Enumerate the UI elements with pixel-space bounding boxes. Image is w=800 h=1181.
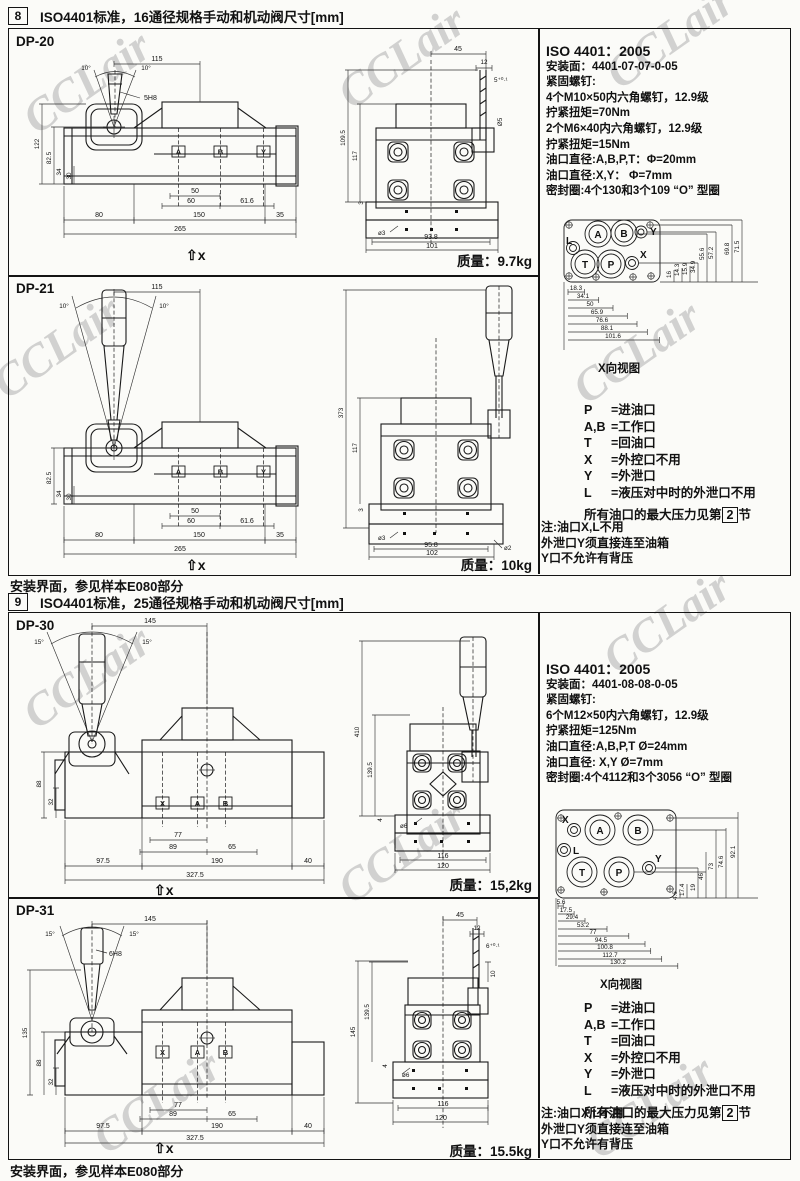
port-label: P	[616, 868, 623, 879]
dim-label: 61.6	[240, 518, 254, 525]
valve-body-outline	[366, 70, 498, 238]
dim-label: 5⁺⁰·¹	[494, 77, 508, 84]
dim-label: 19	[690, 883, 697, 891]
dim-label: 50	[586, 301, 594, 308]
mounting-face-8-drawing: L A B Y T P X 34.9 55.6 57.2 69.8 71.5 1…	[552, 200, 792, 360]
dimension-lines	[359, 641, 490, 873]
view-caption: X向视图	[598, 360, 640, 376]
dim-label: 10°	[59, 302, 69, 310]
centerlines	[163, 752, 226, 827]
dim-label: 10°	[159, 302, 169, 310]
dim-label: 88	[36, 1059, 43, 1067]
port-label: B	[223, 799, 229, 808]
note-line: 注:油口X,L不用	[541, 520, 669, 536]
dim-label: ø6	[402, 1072, 410, 1079]
dim-label: 77	[589, 929, 597, 936]
dim-label: 40	[304, 1123, 312, 1130]
dim-label: 82.5	[46, 151, 53, 164]
info-line: 安装面：4401-08-08-0-05	[546, 678, 732, 694]
valve-body-outline	[64, 422, 298, 506]
dp21-side-drawing: 373 117 3 ø3 95.8 ø2 102	[336, 278, 536, 560]
section-ref-badge: 2	[722, 1105, 739, 1121]
info-line: 拧紧扭矩=70Nm	[546, 106, 720, 122]
port-label: A	[195, 1048, 201, 1057]
port-label: Y	[261, 468, 266, 477]
dim-label: Ø5	[497, 117, 504, 126]
port-label: X	[562, 815, 569, 826]
dim-label: 15°	[142, 638, 152, 646]
port-label: B	[218, 148, 224, 157]
dim-label: 77	[174, 1102, 182, 1109]
port-label: A	[596, 826, 603, 837]
dim-label: 46	[698, 872, 705, 880]
info-line: 4个M10×50内六角螺钉，12.9级	[546, 91, 720, 107]
panel-divider	[538, 612, 540, 1158]
x-direction-arrow: ⇧x	[154, 1140, 174, 1156]
mass-value: 质量：15,2kg	[392, 874, 532, 894]
dim-label: 88	[36, 780, 43, 788]
dim-label: 80	[95, 532, 103, 539]
info-line: 拧紧扭矩=15Nm	[546, 138, 720, 154]
info-line: 6个M12×50内六角螺钉，12.9级	[546, 709, 732, 725]
dim-label: ø3	[378, 535, 386, 542]
port-label: A	[594, 230, 601, 241]
iso-info-block: ISO 4401：2005 安装面：4401-08-08-0-05 紧固螺钉: …	[546, 662, 732, 787]
info-line: ISO 4401：2005	[546, 44, 720, 60]
port-label: X	[160, 799, 165, 808]
port-legend: P=进油口 A,B=工作口 T=回油口 X=外控口不用 Y=外泄口 L=液压对中…	[584, 1000, 756, 1121]
dim-label: ø6	[400, 823, 408, 830]
dim-label: 3	[358, 201, 365, 205]
dim-label: 30	[66, 172, 73, 180]
dim-label: 65	[228, 1111, 236, 1118]
info-line: 安装面：4401-07-07-0-05	[546, 60, 720, 76]
dim-label: 4.6	[672, 891, 679, 900]
dim-label: 373	[338, 407, 345, 418]
legend-row: Y=外泄口	[584, 1066, 756, 1083]
mounting-interface-footer: 安装界面，参见样本E080部分	[10, 1161, 183, 1180]
port-label: Y	[655, 854, 662, 865]
legend-row: A,B=工作口	[584, 1017, 756, 1034]
dim-label: 55.6	[699, 247, 706, 260]
dim-label: 89	[169, 844, 177, 851]
dim-label: 60	[187, 198, 195, 205]
port-label: X	[640, 250, 647, 261]
dim-label: 116	[437, 1101, 448, 1108]
dim-label: 3	[358, 508, 365, 512]
dim-label: 122	[34, 138, 41, 149]
info-line: 2个M6×40内六角螺钉，12.9级	[546, 122, 720, 138]
dimension-lines	[39, 61, 296, 238]
dim-label: 77	[174, 832, 182, 839]
port-label: P	[608, 260, 615, 271]
port-label: L	[573, 846, 579, 857]
dim-label: 40	[304, 858, 312, 865]
note-block: 注:油口X,L不用 外泄口Y须直接连至油箱 Y口不允许有背压	[541, 520, 669, 567]
dp31-front-drawing: 145 15° 15° 6H8 135 88 32 77 89 65 97.5 …	[10, 898, 345, 1154]
dim-label: 327.5	[186, 872, 204, 879]
dimension-lines	[72, 289, 200, 448]
dim-label: 50	[191, 188, 199, 195]
port-label: B	[620, 229, 627, 240]
info-line: 油口直径:A,B,P,T：Φ=20mm	[546, 153, 720, 169]
dim-label: 150	[193, 532, 205, 539]
dim-label: 16	[666, 270, 673, 278]
dim-label: 117	[352, 150, 359, 161]
valve-body-outline	[395, 724, 490, 851]
dp30-side-drawing: 410 139.5 4 ø6 116 120	[342, 612, 537, 880]
dimension-lines	[27, 970, 324, 1147]
centerlines	[163, 1022, 226, 1103]
info-line: 拧紧扭矩=125Nm	[546, 724, 732, 740]
dim-label: 45	[454, 46, 462, 53]
legend-row: A,B=工作口	[584, 419, 756, 436]
dim-label: ø2	[504, 545, 512, 552]
dim-label: 135	[22, 1027, 29, 1038]
dim-label: 4	[382, 1064, 389, 1068]
dim-label: 18.3	[570, 285, 583, 292]
dim-label: 92.1	[730, 845, 737, 858]
dimension-lines	[51, 448, 296, 558]
x-direction-arrow: ⇧x	[186, 247, 206, 263]
dim-label: 116	[437, 853, 448, 860]
legend-row: L=液压对中时的外泄口不用	[584, 1083, 756, 1100]
dim-label: 10°	[141, 64, 151, 72]
port-label: B	[223, 1048, 229, 1057]
dim-label: 34.1	[577, 293, 590, 300]
dim-label: 14.3	[674, 263, 681, 276]
note-line: 外泄口Y须直接连至油箱	[541, 536, 669, 552]
dimension-lines	[343, 290, 502, 560]
dim-label: 73	[708, 862, 715, 870]
dim-label: 120	[437, 863, 449, 870]
dim-label: 410	[354, 726, 361, 737]
dim-label: 4	[377, 818, 384, 822]
legend-row: P=进油口	[584, 402, 756, 419]
dim-label: 35	[276, 532, 284, 539]
section-9-header: 9 ISO4401标准，25通径规格手动和机动阀尺寸[mm]	[8, 592, 344, 612]
dim-label: 5.6	[557, 899, 566, 906]
dim-label: 17.4	[679, 883, 686, 896]
dim-label: 10	[490, 970, 497, 978]
port-legend: P=进油口 A,B=工作口 T=回油口 X=外控口不用 Y=外泄口 L=液压对中…	[584, 402, 756, 523]
dim-label: 265	[174, 546, 186, 553]
info-line: 油口直径: X,Y Ø=7mm	[546, 756, 732, 772]
dimension-lines	[47, 623, 207, 742]
dim-label: 120	[435, 1115, 447, 1122]
info-line: 油口直径:A,B,P,T Ø=24mm	[546, 740, 732, 756]
dim-label: 130.2	[610, 959, 626, 966]
dim-label: 115	[151, 284, 162, 291]
dim-label: 101.6	[605, 333, 621, 340]
port-label: L	[566, 236, 572, 247]
legend-row: X=外控口不用	[584, 452, 756, 469]
note-line: Y口不允许有背压	[541, 551, 669, 567]
dim-label: 35	[276, 212, 284, 219]
dim-label: 15.9	[682, 262, 689, 275]
dim-label: 30	[66, 493, 73, 501]
mass-value: 质量：15.5kg	[392, 1140, 532, 1160]
dim-label: 53.2	[577, 922, 590, 929]
x-direction-arrow: ⇧x	[154, 882, 174, 898]
info-line: 密封圈:4个4112和3个3056 “O” 型圈	[546, 771, 732, 787]
iso-info-block: ISO 4401：2005 安装面：4401-07-07-0-05 紧固螺钉: …	[546, 44, 720, 200]
dp20-side-drawing: 45 12 5⁺⁰·¹ Ø5 109.5 117 3 ø3 93.8 101	[336, 40, 536, 252]
legend-row: Y=外泄口	[584, 468, 756, 485]
dim-label: 34.9	[690, 260, 697, 273]
dim-label: 15°	[129, 930, 139, 938]
dim-label: 69.8	[724, 242, 731, 255]
valve-body-outline	[55, 708, 324, 818]
centerlines	[92, 626, 207, 830]
dim-label: 6⁺⁰·¹	[486, 943, 500, 950]
dim-label: 74.6	[718, 855, 725, 868]
dim-label: 97.5	[96, 858, 110, 865]
info-line: ISO 4401：2005	[546, 662, 732, 678]
section-number-badge: 8	[8, 7, 28, 25]
section-title: ISO4401标准，25通径规格手动和机动阀尺寸[mm]	[40, 592, 344, 612]
legend-row: X=外控口不用	[584, 1050, 756, 1067]
dim-label: 93.8	[424, 234, 438, 241]
dim-label: 327.5	[186, 1135, 204, 1142]
section-number-badge: 9	[8, 593, 28, 611]
port-label: T	[579, 868, 585, 879]
dim-label: 117	[352, 442, 359, 453]
dim-label: 71.5	[734, 240, 741, 253]
port-label: B	[634, 826, 641, 837]
centerlines	[92, 920, 207, 1098]
dim-label: 115	[151, 56, 162, 63]
note-line: 注:油口X,L不用	[541, 1106, 669, 1122]
dim-label: 265	[174, 226, 186, 233]
dim-label: 112.7	[602, 952, 618, 959]
dim-label: 34	[56, 168, 63, 176]
valve-body-outline	[55, 978, 324, 1095]
note-line: Y口不允许有背压	[541, 1137, 669, 1153]
dim-label: 139.5	[364, 1004, 371, 1020]
dim-label: 65	[228, 844, 236, 851]
port-label: T	[582, 260, 588, 271]
port-label: A	[176, 468, 182, 477]
dim-label: 32	[48, 1078, 55, 1086]
dim-label: 109.5	[340, 130, 347, 146]
note-line: 外泄口Y须直接连至油箱	[541, 1122, 669, 1138]
dim-label: 145	[144, 618, 156, 625]
dim-label: 15°	[45, 930, 55, 938]
dim-label: 190	[211, 858, 223, 865]
panel-divider	[8, 275, 538, 277]
dim-label: 65.9	[591, 309, 604, 316]
dim-label: 150	[193, 212, 205, 219]
port-label: B	[218, 468, 224, 477]
dp30-front-drawing: 145 15° 15° 88 32 77 89 65 97.5 190 40 3…	[10, 612, 345, 896]
dim-label: 32	[48, 798, 55, 806]
dim-label: 10°	[81, 64, 91, 72]
port-label: X	[160, 1048, 165, 1057]
port-label: Y	[650, 227, 657, 238]
dim-label: 190	[211, 1123, 223, 1130]
legend-row: P=进油口	[584, 1000, 756, 1017]
dim-label: 139.5	[367, 762, 374, 778]
dim-label: 88.1	[601, 325, 614, 332]
info-line: 油口直径:X,Y： Φ=7mm	[546, 169, 720, 185]
dim-label: 15°	[34, 638, 44, 646]
dim-label: 12	[473, 925, 481, 932]
info-line: 密封圈:4个130和3个109 “O” 型圈	[546, 184, 720, 200]
valve-body-outline	[64, 74, 298, 186]
legend-row: T=回油口	[584, 435, 756, 452]
dim-label: 29.4	[566, 914, 579, 921]
dim-label: ø3	[378, 230, 386, 237]
panel-divider	[538, 28, 540, 574]
port-label: A	[195, 799, 201, 808]
dim-label: 12	[480, 59, 488, 66]
dim-label: 101	[426, 243, 438, 250]
legend-row: L=液压对中时的外泄口不用	[584, 485, 756, 502]
section-title: ISO4401标准，16通径规格手动和机动阀尺寸[mm]	[40, 6, 344, 26]
dim-label: 17.5	[560, 907, 573, 914]
dim-label: 61.6	[240, 198, 254, 205]
dim-label: 94.5	[595, 937, 608, 944]
x-direction-arrow: ⇧x	[186, 557, 206, 573]
dim-label: 102	[426, 550, 438, 557]
dim-label: 145	[144, 916, 156, 923]
note-block: 注:油口X,L不用 外泄口Y须直接连至油箱 Y口不允许有背压	[541, 1106, 669, 1153]
dim-label: 57.2	[708, 246, 715, 259]
mounting-face-9-drawing: X A B L T P Y 19 46 73 74.6 92.1 4.6 17.…	[548, 792, 796, 968]
port-label: Y	[261, 148, 266, 157]
dim-label: 100.8	[597, 944, 613, 951]
dim-label: 50	[191, 508, 199, 515]
dim-label: 145	[350, 1026, 357, 1037]
legend-row: T=回油口	[584, 1033, 756, 1050]
dimension-lines	[564, 220, 758, 350]
dim-label: 60	[187, 518, 195, 525]
dim-label: 95.8	[424, 542, 438, 549]
view-caption: X向视图	[600, 976, 642, 992]
section-8-header: 8 ISO4401标准，16通径规格手动和机动阀尺寸[mm]	[8, 6, 344, 26]
dim-label: 34	[56, 490, 63, 498]
dim-label: 97.5	[96, 1123, 110, 1130]
port-label: A	[176, 148, 182, 157]
dim-label: 82.5	[46, 471, 53, 484]
info-line: 紧固螺钉:	[546, 75, 720, 91]
dim-label: 80	[95, 212, 103, 219]
dp31-side-drawing: 45 12 6⁺⁰·¹ 10 145 139.5 4 ø6 116 120	[340, 898, 538, 1138]
dim-label: 76.6	[596, 317, 609, 324]
section-ref-badge: 2	[722, 507, 739, 523]
dim-label: 89	[169, 1111, 177, 1118]
dim-label: 5H8	[144, 95, 157, 102]
dim-label: 6H8	[109, 951, 122, 958]
info-line: 紧固螺钉:	[546, 693, 732, 709]
dim-label: 45	[456, 912, 464, 919]
